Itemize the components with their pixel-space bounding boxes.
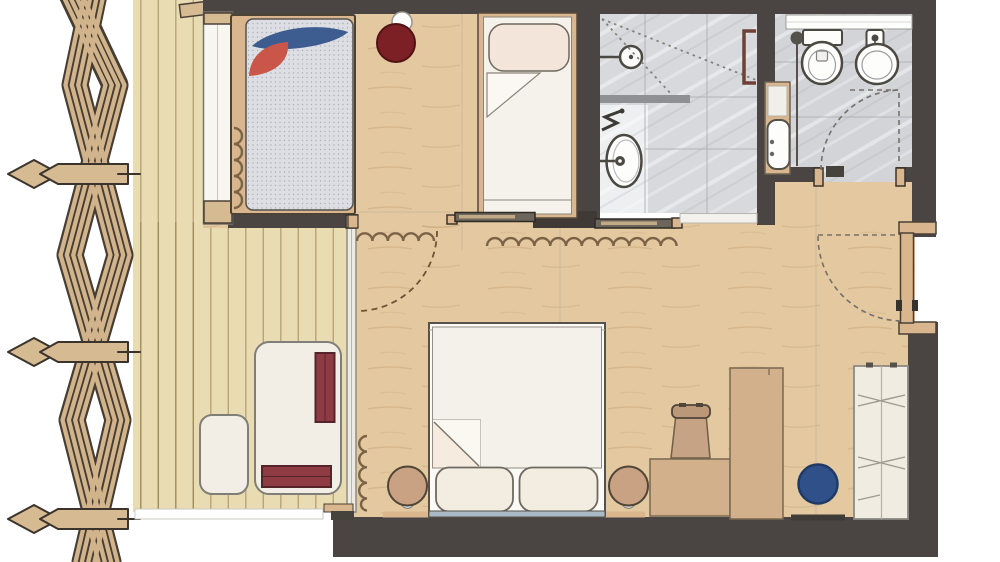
desk-chair xyxy=(671,414,710,458)
chair-backrest xyxy=(672,405,710,418)
headboard xyxy=(429,511,605,517)
deck-fascia xyxy=(135,509,323,519)
door-mat xyxy=(791,515,845,521)
pergola-lattice xyxy=(8,0,140,562)
wall-bedroom-bottom xyxy=(228,214,358,228)
door-handle xyxy=(896,300,902,311)
wc-door-jamb-left xyxy=(814,168,823,186)
wc-door-jamb-right xyxy=(896,168,905,186)
half-wall xyxy=(600,95,690,103)
floor-drain xyxy=(791,32,804,45)
wc-door-leaf-mark xyxy=(826,166,844,177)
wardrobe xyxy=(854,363,908,520)
wall-bottom xyxy=(333,517,934,557)
wall-right-upper xyxy=(912,0,936,237)
wall-top xyxy=(203,0,936,14)
window-cap-top xyxy=(204,13,232,24)
wall-nook-shower-divider xyxy=(577,0,600,222)
desk xyxy=(650,459,730,516)
bed-pillow-right xyxy=(520,468,598,512)
floor-plan-canvas xyxy=(0,0,1000,562)
toilet xyxy=(802,30,842,84)
single-bed-pillow xyxy=(489,24,569,71)
bed-pillow-left xyxy=(436,468,513,512)
dark-red-pouf xyxy=(377,24,415,62)
window-cap-bottom xyxy=(204,201,232,223)
bedroom-door-jamb xyxy=(348,215,358,228)
tall-cabinet xyxy=(730,368,783,519)
shower-room-threshold xyxy=(680,214,757,224)
entrance-frame-top xyxy=(899,222,936,234)
entrance-door-leaf xyxy=(901,233,914,323)
glass-wall-jamb-bottom xyxy=(324,504,353,512)
side-table xyxy=(200,415,248,494)
entrance-frame-bottom xyxy=(899,322,936,334)
single-bed xyxy=(478,13,577,218)
door-handle xyxy=(912,300,918,311)
living-bed xyxy=(429,323,605,517)
blue-pouf xyxy=(799,465,838,504)
vanity-basin xyxy=(768,120,790,169)
floor-plan xyxy=(0,0,1000,562)
wc-vanity xyxy=(765,82,790,174)
